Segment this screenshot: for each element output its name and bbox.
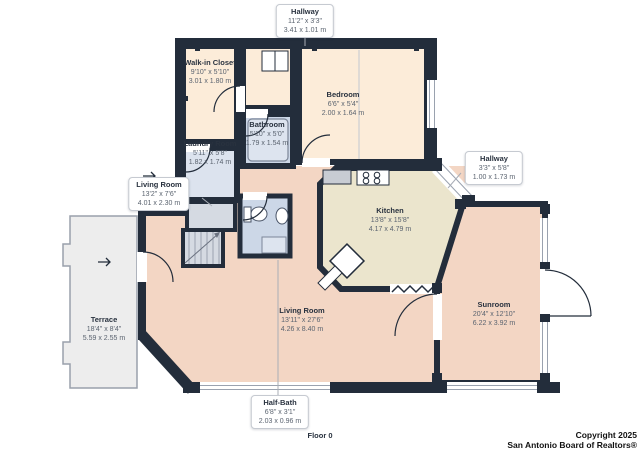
room-label-half-bath: Half-Bath 6'8" x 3'1" 2.03 x 0.96 m xyxy=(251,395,309,429)
room-label-kitchen: Kitchen 13'8" x 15'8" 4.17 x 4.79 m xyxy=(369,206,411,234)
room-label-hallway-right: Hallway 3'3" x 5'8" 1.00 x 1.73 m xyxy=(465,151,523,185)
room-label-hallway-top: Hallway 11'2" x 3'3" 3.41 x 1.01 m xyxy=(276,4,334,38)
room-label-laundry-room: Laundry Room 5'11" x 5'8" 1.82 x 1.74 m xyxy=(184,139,237,167)
room-label-bathroom: Bathroom 5'10" x 5'0" 1.79 x 1.54 m xyxy=(246,120,288,148)
terrace-area xyxy=(63,216,137,388)
room-label-terrace: Terrace 18'4" x 8'4" 5.59 x 2.55 m xyxy=(83,315,125,343)
copyright-line1: Copyright 2025 xyxy=(507,430,637,441)
sunroom-room xyxy=(432,199,591,383)
floor-plan-drawing xyxy=(0,0,640,453)
room-label-sunroom: Sunroom 20'4" x 12'10" 6.22 x 3.92 m xyxy=(473,300,515,328)
copyright-notice: Copyright 2025 San Antonio Board of Real… xyxy=(507,430,637,451)
floorplan-canvas: Hallway 11'2" x 3'3" 3.41 x 1.01 m Walk-… xyxy=(0,0,640,453)
room-label-living-room-small: Living Room 13'2" x 7'6" 4.01 x 2.30 m xyxy=(128,177,189,211)
room-label-walk-in-closet: Walk-in Closet 9'10" x 5'10" 3.01 x 1.80… xyxy=(184,58,235,86)
room-label-living-room-main: Living Room 13'11" x 27'6" 4.26 x 8.40 m xyxy=(279,306,324,334)
sink-icon xyxy=(276,208,288,224)
floor-label: Floor 0 xyxy=(307,431,332,440)
shower-icon xyxy=(262,237,286,253)
room-label-bedroom: Bedroom 6'6" x 5'4" 2.00 x 1.64 m xyxy=(322,90,364,118)
stove-icon xyxy=(357,170,389,185)
counter-icon xyxy=(323,170,351,184)
copyright-line2: San Antonio Board of Realtors® xyxy=(507,440,637,451)
